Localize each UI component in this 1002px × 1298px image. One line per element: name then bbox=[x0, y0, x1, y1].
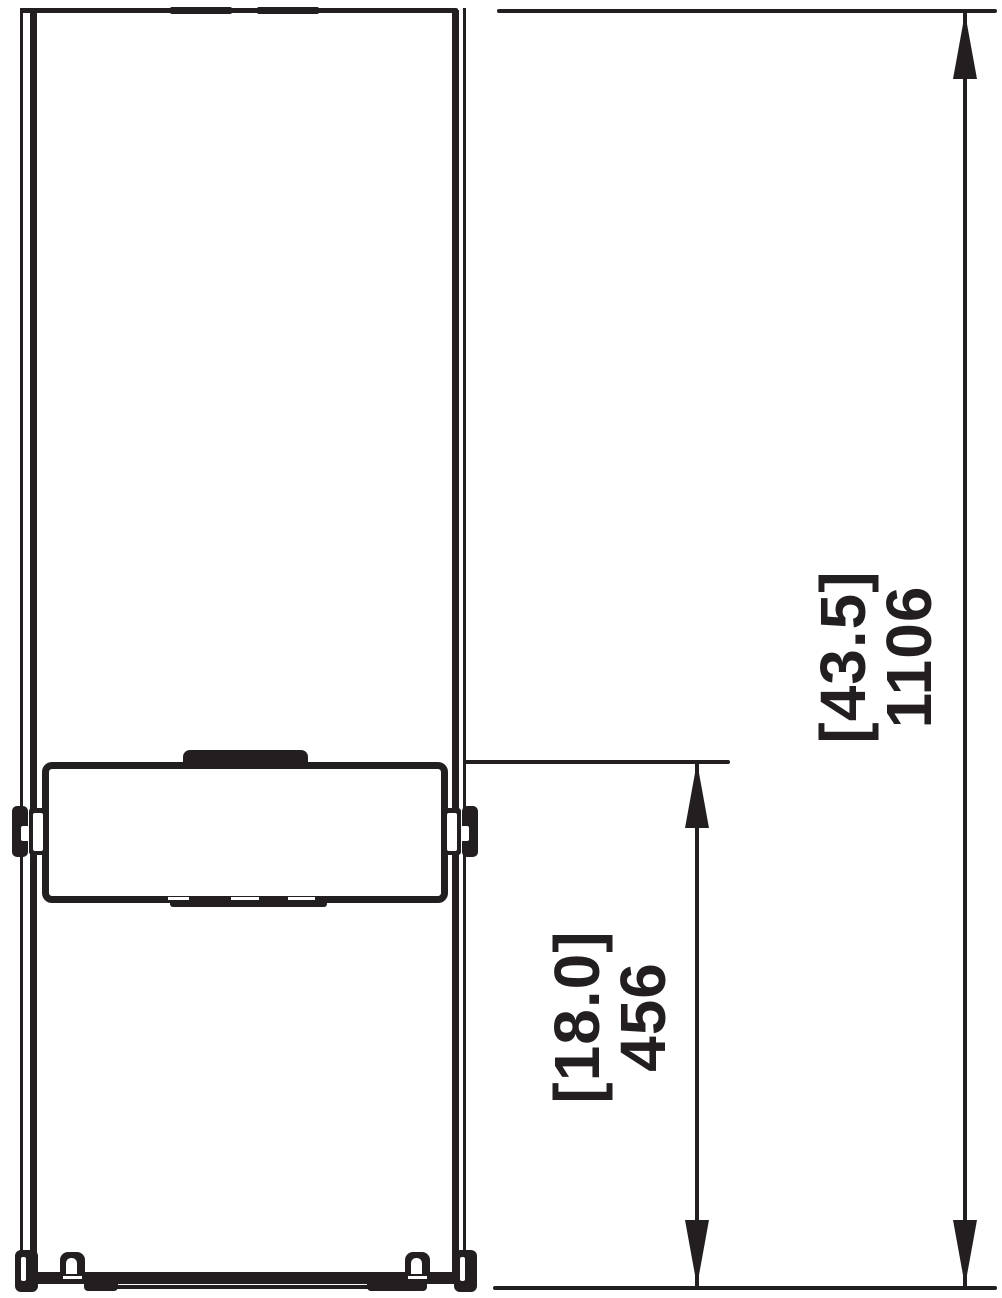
firebox-body bbox=[42, 762, 448, 903]
foot-left-slit bbox=[21, 1257, 26, 1281]
dim-label-overall: [43.5] 1106 bbox=[806, 507, 946, 807]
dim-line-firebox bbox=[695, 762, 699, 1286]
dim-overall-arrow-top-icon bbox=[953, 13, 977, 79]
firebox-bottom-slit-3 bbox=[288, 897, 315, 900]
dim-overall-imperial: [43.5] bbox=[810, 507, 876, 807]
dim-firebox-arrow-top-icon bbox=[685, 762, 709, 828]
clamp-right-window bbox=[447, 813, 457, 851]
frame-rail-left-inner bbox=[30, 10, 37, 1276]
base-bracket-right-slit bbox=[408, 1276, 427, 1279]
frame-rail-right-outer bbox=[463, 8, 466, 1284]
frame-bottom-pad-left bbox=[84, 1282, 118, 1291]
base-bracket-right-hole bbox=[411, 1258, 422, 1274]
frame-top-tab-2 bbox=[257, 7, 319, 14]
foot-right-slit bbox=[460, 1257, 465, 1281]
extension-line-bottom bbox=[493, 1286, 997, 1290]
firebox-bottom-pad bbox=[170, 901, 327, 907]
foot-right bbox=[454, 1250, 477, 1292]
clamp-left-notch bbox=[21, 826, 29, 841]
dim-firebox-arrow-bottom-icon bbox=[685, 1220, 709, 1286]
dim-overall-arrow-bottom-icon bbox=[953, 1220, 977, 1286]
dim-firebox-metric: 456 bbox=[610, 867, 676, 1167]
dim-line-overall bbox=[963, 13, 967, 1286]
technical-drawing-canvas: [43.5] 1106 [18.0] 456 bbox=[0, 0, 1002, 1298]
dim-firebox-imperial: [18.0] bbox=[544, 867, 610, 1167]
clamp-right-notch bbox=[461, 826, 469, 841]
frame-rail-left-outer bbox=[20, 8, 23, 1284]
base-bracket-left-hole bbox=[66, 1258, 77, 1274]
dim-overall-metric: 1106 bbox=[876, 507, 942, 807]
frame-bottom-strip bbox=[117, 1285, 370, 1289]
clamp-left-window bbox=[33, 813, 43, 851]
foot-left bbox=[15, 1250, 38, 1292]
frame-top-tab-1 bbox=[170, 7, 232, 14]
firebox-bottom-slit-1 bbox=[168, 897, 189, 900]
dim-label-firebox: [18.0] 456 bbox=[540, 867, 680, 1167]
extension-line-top bbox=[497, 9, 997, 13]
frame-rail-right-inner bbox=[452, 10, 459, 1276]
base-bracket-left-slit bbox=[63, 1276, 82, 1279]
firebox-bottom-slit-2 bbox=[231, 897, 259, 900]
frame-top-bar bbox=[20, 8, 458, 13]
